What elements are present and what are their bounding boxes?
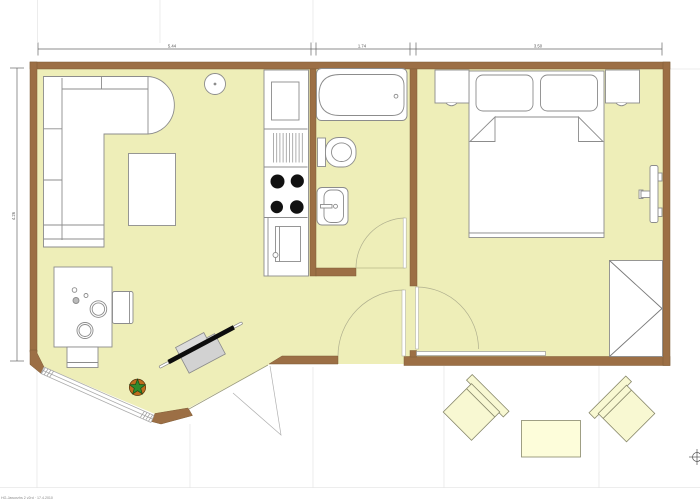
svg-text:1.74: 1.74 [358, 44, 367, 49]
svg-text:4.26: 4.26 [11, 211, 16, 220]
svg-text:3.50: 3.50 [534, 44, 543, 49]
svg-text:5.44: 5.44 [168, 44, 177, 49]
svg-text:HG-Jaworzhs 2 v2rd · 17.4.2010: HG-Jaworzhs 2 v2rd · 17.4.2010 [1, 496, 53, 500]
